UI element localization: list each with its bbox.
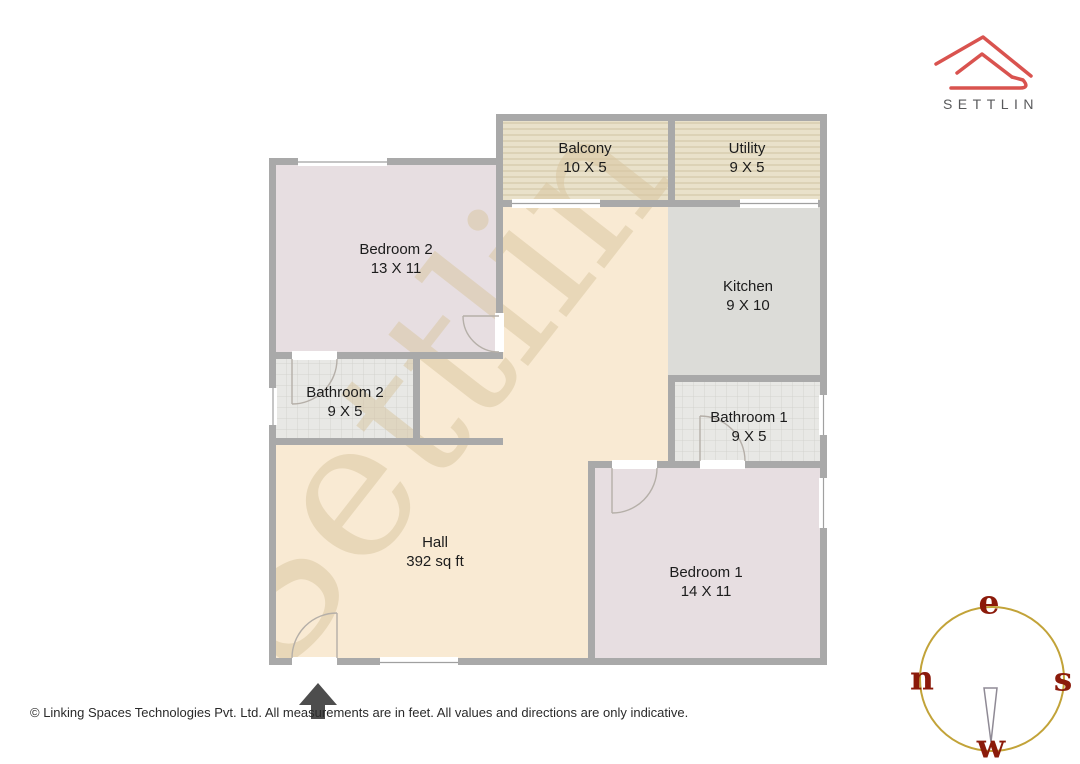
settlin-logo-icon	[936, 37, 1031, 88]
compass-letter-bottom: w	[977, 727, 1005, 764]
room-dims: 10 X 5	[558, 158, 611, 177]
room-name: Bathroom 1	[710, 408, 788, 427]
room-name: Utility	[729, 139, 766, 158]
brand-wordmark: SETTLIN	[943, 96, 1039, 112]
room-dims: 9 X 10	[723, 296, 773, 315]
floor-plan-svg: Settlin	[0, 0, 1080, 764]
room-name: Kitchen	[723, 277, 773, 296]
room-name: Balcony	[558, 139, 611, 158]
room-label-bathroom2: Bathroom 2 9 X 5	[306, 383, 384, 421]
room-label-bathroom1: Bathroom 1 9 X 5	[710, 408, 788, 446]
room-name: Bedroom 1	[669, 563, 742, 582]
room-name: Bathroom 2	[306, 383, 384, 402]
compass-letter-right: s	[1054, 660, 1073, 699]
room-label-kitchen: Kitchen 9 X 10	[723, 277, 773, 315]
room-label-balcony: Balcony 10 X 5	[558, 139, 611, 177]
room-dims: 9 X 5	[306, 402, 384, 421]
room-dims: 9 X 5	[729, 158, 766, 177]
room-label-bedroom2: Bedroom 2 13 X 11	[359, 240, 432, 278]
room-name: Hall	[406, 533, 464, 552]
room-dims: 392 sq ft	[406, 552, 464, 571]
room-dims: 9 X 5	[710, 427, 788, 446]
compass-letter-left: n	[910, 659, 934, 698]
compass-letter-top: e	[979, 583, 1000, 622]
room-dims: 13 X 11	[359, 259, 432, 278]
copyright-footer: © Linking Spaces Technologies Pvt. Ltd. …	[30, 705, 688, 720]
room-label-utility: Utility 9 X 5	[729, 139, 766, 177]
room-name: Bedroom 2	[359, 240, 432, 259]
room-dims: 14 X 11	[669, 582, 742, 601]
floorplan-page: Settlin	[0, 0, 1080, 764]
room-label-bedroom1: Bedroom 1 14 X 11	[669, 563, 742, 601]
room-label-hall: Hall 392 sq ft	[406, 533, 464, 571]
